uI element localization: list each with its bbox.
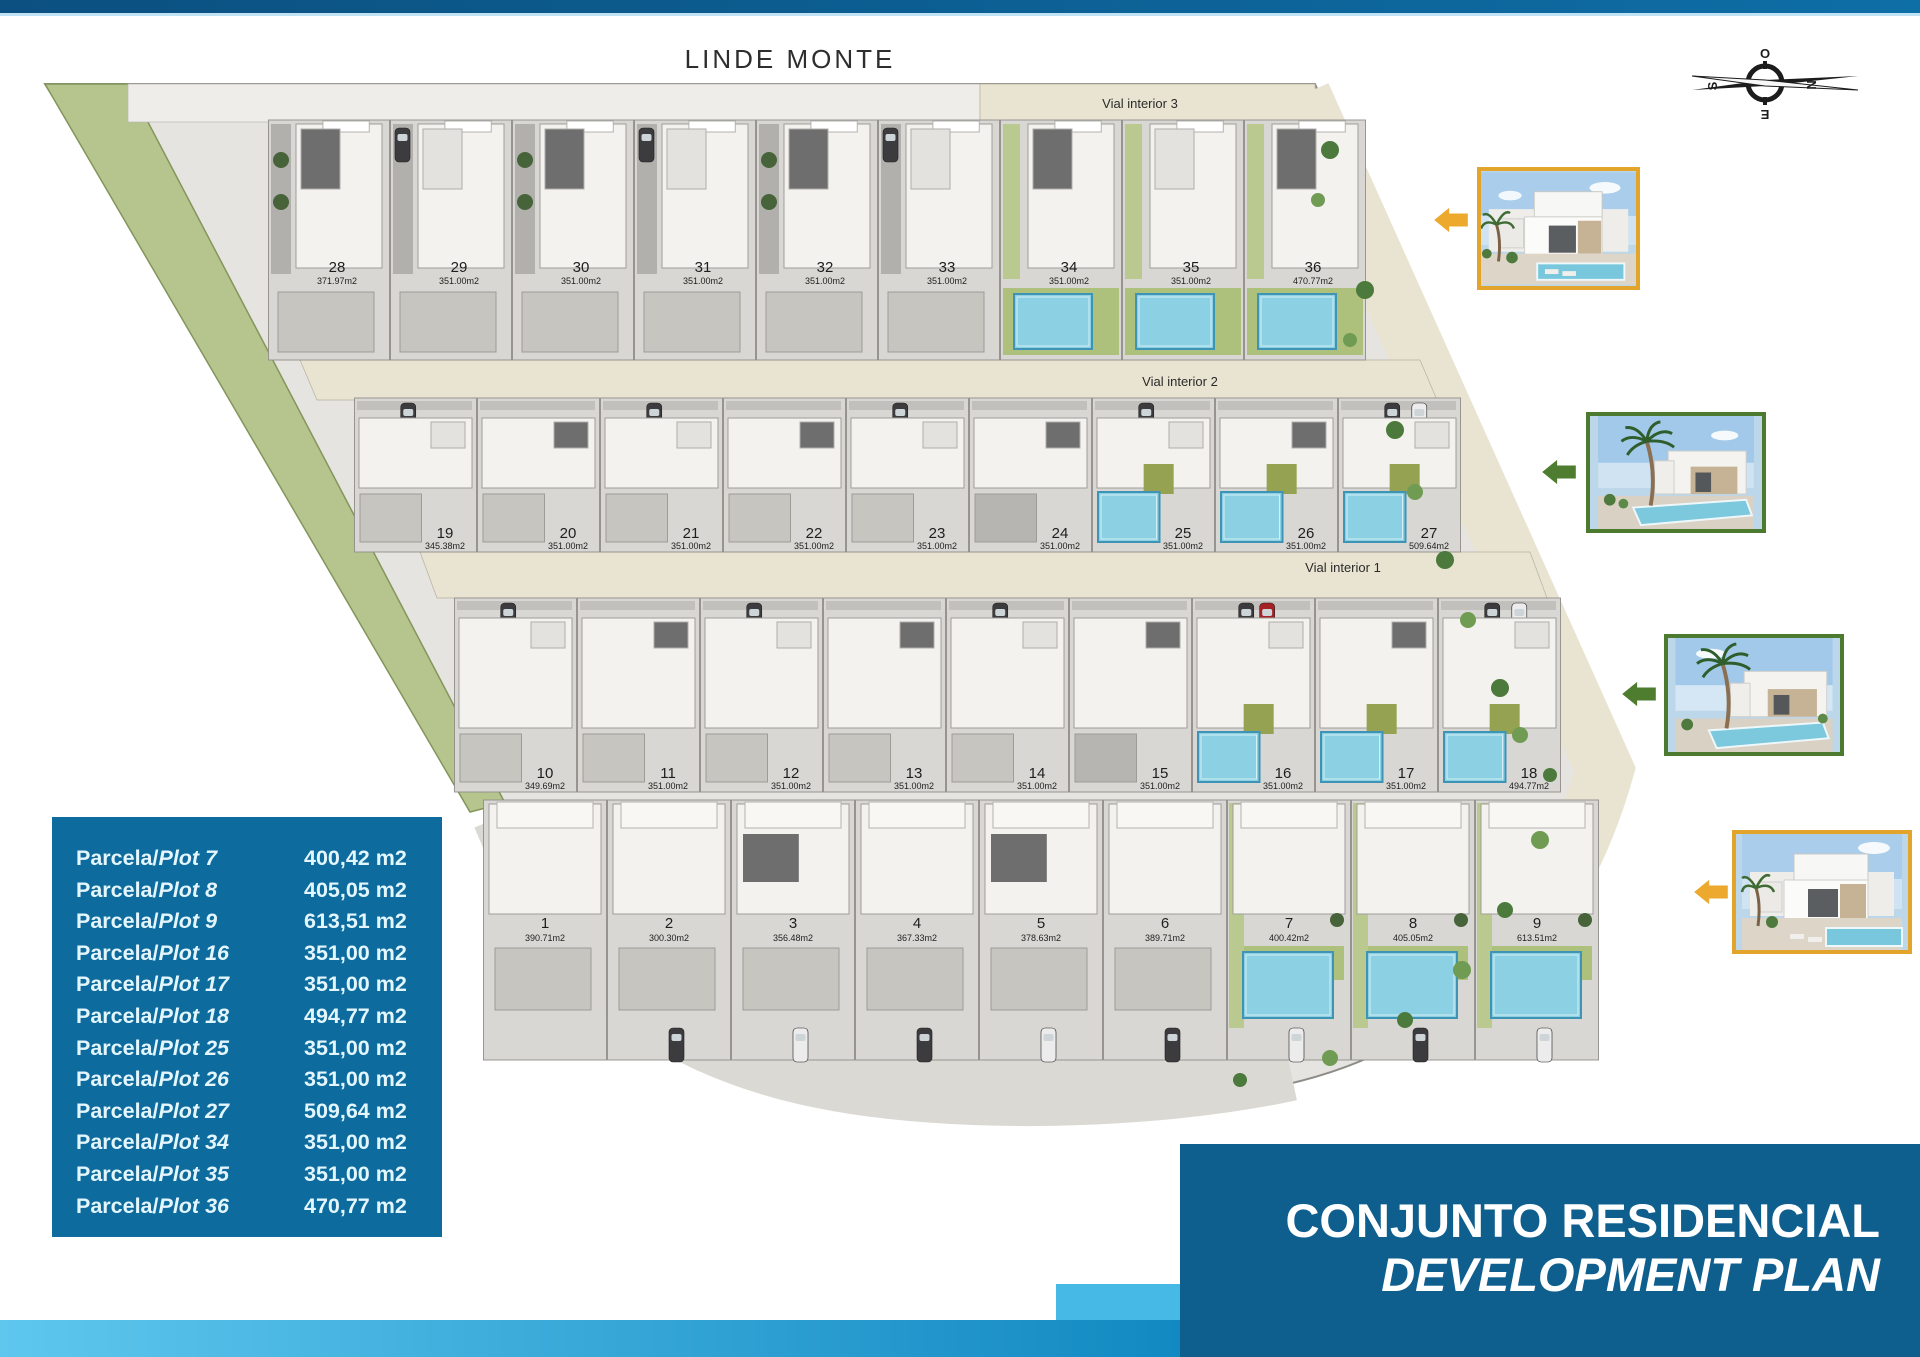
- villa-render: [1668, 638, 1840, 752]
- tree-icon: [1343, 333, 1357, 347]
- gravel-terrace: [952, 734, 1014, 782]
- gravel-terrace: [766, 292, 862, 352]
- plot-area: 351.00m2: [561, 276, 601, 286]
- gravel-terrace: [644, 292, 740, 352]
- plot-cell-16: 16351.00m2: [1193, 598, 1315, 792]
- roof-section: [1515, 622, 1549, 648]
- car-windshield: [672, 1034, 682, 1041]
- compass-letter-east: E: [1760, 107, 1769, 122]
- car-windshield: [1292, 1034, 1302, 1041]
- plot-area: 351.00m2: [805, 276, 845, 286]
- plot-area: 613.51m2: [1517, 933, 1557, 943]
- lawn-strip: [1247, 124, 1264, 279]
- roof-section: [545, 129, 584, 189]
- car-windshield: [398, 134, 408, 141]
- villa-render: [1481, 171, 1636, 286]
- lawn-strip: [1003, 124, 1020, 279]
- title-english: DEVELOPMENT PLAN: [1180, 1248, 1880, 1302]
- pool: [1198, 732, 1260, 782]
- roof-section: [1269, 622, 1303, 648]
- plot-number: 30: [573, 259, 590, 276]
- roof-section: [301, 129, 340, 189]
- plot-number: 18: [1521, 765, 1538, 782]
- legend-row: Parcela/Plot 36470,77 m2: [76, 1191, 428, 1223]
- gravel-terrace: [1115, 948, 1211, 1010]
- legend-plot-label: Parcela/Plot 18: [76, 1001, 304, 1033]
- pool: [1014, 294, 1092, 349]
- plot-area: 356.48m2: [773, 933, 813, 943]
- tree-icon: [1543, 768, 1557, 782]
- pool: [1321, 732, 1383, 782]
- legend-row: Parcela/Plot 27509,64 m2: [76, 1096, 428, 1128]
- plot-number: 1: [541, 915, 549, 932]
- plot-area: 405.05m2: [1393, 933, 1433, 943]
- plot-number: 31: [695, 259, 712, 276]
- plot-area: 351.00m2: [1040, 541, 1080, 551]
- car-icon: [1537, 1028, 1552, 1062]
- roof-section: [1277, 129, 1316, 189]
- plot-legend-panel: Parcela/Plot 7400,42 m2Parcela/Plot 8405…: [52, 817, 442, 1237]
- tree-icon: [273, 152, 289, 168]
- plot-number: 21: [683, 525, 700, 542]
- pool: [1098, 492, 1160, 542]
- roof-section: [789, 129, 828, 189]
- car-windshield: [403, 409, 413, 416]
- tree-icon: [761, 194, 777, 210]
- plot-area: 351.00m2: [794, 541, 834, 551]
- road-vial-3-label: Vial interior 3: [1102, 96, 1178, 111]
- bottom-accent-step: [1056, 1284, 1180, 1320]
- plot-number: 5: [1037, 915, 1045, 932]
- plot-number: 6: [1161, 915, 1169, 932]
- car-icon: [639, 128, 654, 162]
- car-windshield: [1168, 1034, 1178, 1041]
- pool: [1344, 492, 1406, 542]
- legend-plot-label: Parcela/Plot 17: [76, 969, 304, 1001]
- plot-area: 494.77m2: [1509, 781, 1549, 791]
- sidewalk-strip: [480, 401, 595, 410]
- pool: [1444, 732, 1506, 782]
- plot-number: 13: [906, 765, 923, 782]
- compass-rose: O N E S: [1692, 46, 1858, 122]
- gravel-terrace: [483, 494, 545, 542]
- plot-cell-17: 17351.00m2: [1316, 598, 1438, 792]
- plot-area: 351.00m2: [1017, 781, 1057, 791]
- street-label: LINDE MONTE: [640, 44, 940, 75]
- legend-plot-label: Parcela/Plot 7: [76, 843, 304, 875]
- tree-icon: [1321, 141, 1339, 159]
- road-vial-1-label: Vial interior 1: [1305, 560, 1381, 575]
- villa-render: [1736, 834, 1908, 950]
- top-bar-accent-line: [0, 13, 1920, 16]
- car-icon: [395, 128, 410, 162]
- roof-section: [991, 834, 1047, 882]
- gravel-terrace: [522, 292, 618, 352]
- tree-icon: [1397, 1012, 1413, 1028]
- car-windshield: [1416, 1034, 1426, 1041]
- plot-cell-29: 29351.00m2: [391, 120, 512, 360]
- plot-cell-10: 10349.69m2: [455, 598, 577, 792]
- car-windshield: [749, 609, 759, 616]
- plot-cell-35: 35351.00m2: [1123, 120, 1244, 360]
- gravel-terrace: [888, 292, 984, 352]
- roof-section: [1392, 622, 1426, 648]
- pool: [1491, 952, 1581, 1018]
- car-windshield: [895, 409, 905, 416]
- legend-plot-area: 613,51 m2: [304, 906, 407, 938]
- legend-row: Parcela/Plot 18494,77 m2: [76, 1001, 428, 1033]
- legend-plot-area: 405,05 m2: [304, 875, 407, 907]
- plot-cell-24: 24351.00m2: [970, 398, 1092, 552]
- roof-section: [667, 129, 706, 189]
- olive-terrace: [1367, 704, 1397, 734]
- pool: [1243, 952, 1333, 1018]
- gravel-terrace: [400, 292, 496, 352]
- villa-render: [1590, 416, 1762, 529]
- plot-area: 345.38m2: [425, 541, 465, 551]
- tree-icon: [273, 194, 289, 210]
- car-windshield: [1540, 1034, 1550, 1041]
- tree-icon: [1436, 551, 1454, 569]
- plot-area: 351.00m2: [1263, 781, 1303, 791]
- roof-section: [1292, 422, 1326, 448]
- canopy: [1241, 802, 1337, 828]
- plot-cell-22: 22351.00m2: [724, 398, 846, 552]
- plot-area: 351.00m2: [1049, 276, 1089, 286]
- plot-number: 16: [1275, 765, 1292, 782]
- plot-cell-19: 19345.38m2: [355, 398, 477, 552]
- plot-area: 351.00m2: [671, 541, 711, 551]
- plot-area: 349.69m2: [525, 781, 565, 791]
- plot-cell-7: 7400.42m2: [1228, 800, 1351, 1062]
- legend-plot-area: 494,77 m2: [304, 1001, 407, 1033]
- car-windshield: [1387, 409, 1397, 416]
- roof-section: [677, 422, 711, 448]
- plot-cell-21: 21351.00m2: [601, 398, 723, 552]
- legend-rows: Parcela/Plot 7400,42 m2Parcela/Plot 8405…: [76, 843, 428, 1222]
- gravel-terrace: [706, 734, 768, 782]
- compass-letter-west: O: [1760, 46, 1770, 61]
- sidewalk-strip: [826, 601, 941, 610]
- sidewalk-strip: [726, 401, 841, 410]
- plot-area: 351.00m2: [894, 781, 934, 791]
- legend-row: Parcela/Plot 9613,51 m2: [76, 906, 428, 938]
- tree-icon: [1311, 193, 1325, 207]
- road-vial-1: [420, 552, 1547, 598]
- bottom-accent-bar: [0, 1320, 1180, 1357]
- plot-number: 17: [1398, 765, 1415, 782]
- canopy: [1365, 802, 1461, 828]
- tree-icon: [1233, 1073, 1247, 1087]
- plot-cell-5: 5378.63m2: [980, 800, 1103, 1062]
- gravel-terrace: [278, 292, 374, 352]
- legend-plot-label: Parcela/Plot 26: [76, 1064, 304, 1096]
- plot-number: 3: [789, 915, 797, 932]
- pool: [1367, 952, 1457, 1018]
- olive-terrace: [1267, 464, 1297, 494]
- olive-terrace: [1244, 704, 1274, 734]
- roof-section: [800, 422, 834, 448]
- gravel-terrace: [583, 734, 645, 782]
- roof-section: [1415, 422, 1449, 448]
- gravel-terrace: [852, 494, 914, 542]
- legend-plot-area: 351,00 m2: [304, 938, 407, 970]
- sidewalk-strip: [1072, 601, 1187, 610]
- roof-section: [900, 622, 934, 648]
- plot-cell-25: 25351.00m2: [1093, 398, 1215, 552]
- plot-area: 351.00m2: [1286, 541, 1326, 551]
- legend-plot-area: 470,77 m2: [304, 1191, 407, 1223]
- plot-cell-1: 1390.71m2: [484, 800, 607, 1060]
- plot-cell-4: 4367.33m2: [856, 800, 979, 1062]
- car-windshield: [995, 609, 1005, 616]
- sidewalk-strip: [1318, 601, 1433, 610]
- tree-icon: [1512, 727, 1528, 743]
- plot-area: 351.00m2: [1140, 781, 1180, 791]
- canopy: [1117, 802, 1213, 828]
- car-windshield: [1241, 609, 1251, 616]
- legend-plot-area: 351,00 m2: [304, 1064, 407, 1096]
- roof-section: [431, 422, 465, 448]
- roof-section: [654, 622, 688, 648]
- car-windshield: [1414, 409, 1424, 416]
- plot-area: 509.64m2: [1409, 541, 1449, 551]
- plot-cell-27: 27509.64m2: [1339, 398, 1461, 552]
- legend-plot-label: Parcela/Plot 34: [76, 1127, 304, 1159]
- tree-icon: [517, 194, 533, 210]
- canopy: [621, 802, 717, 828]
- car-windshield: [1262, 609, 1272, 616]
- plot-cell-12: 12351.00m2: [701, 598, 823, 792]
- plot-area: 351.00m2: [548, 541, 588, 551]
- tree-icon: [1497, 902, 1513, 918]
- plot-number: 25: [1175, 525, 1192, 542]
- pool: [1136, 294, 1214, 349]
- canopy: [869, 802, 965, 828]
- legend-plot-label: Parcela/Plot 36: [76, 1191, 304, 1223]
- plot-cell-20: 20351.00m2: [478, 398, 600, 552]
- legend-plot-label: Parcela/Plot 9: [76, 906, 304, 938]
- car-windshield: [920, 1034, 930, 1041]
- roof-section: [1169, 422, 1203, 448]
- canopy: [497, 802, 593, 828]
- gravel-terrace: [975, 494, 1037, 542]
- arrow-icon: [1692, 878, 1730, 906]
- plot-area: 351.00m2: [1171, 276, 1211, 286]
- tree-icon: [1454, 913, 1468, 927]
- tree-icon: [517, 152, 533, 168]
- plot-area: 371.97m2: [317, 276, 357, 286]
- plot-cell-32: 32351.00m2: [757, 120, 878, 360]
- compass-letter-south: S: [1705, 81, 1720, 90]
- plot-cell-34: 34351.00m2: [1001, 120, 1122, 360]
- canopy: [993, 802, 1089, 828]
- roof-section: [1023, 622, 1057, 648]
- roof-section: [911, 129, 950, 189]
- plot-number: 7: [1285, 915, 1293, 932]
- plot-number: 4: [913, 915, 921, 932]
- tree-icon: [1491, 679, 1509, 697]
- legend-row: Parcela/Plot 17351,00 m2: [76, 969, 428, 1001]
- legend-plot-area: 351,00 m2: [304, 1127, 407, 1159]
- plot-cell-31: 31351.00m2: [635, 120, 756, 360]
- plot-area: 351.00m2: [1386, 781, 1426, 791]
- plot-number: 10: [537, 765, 554, 782]
- car-icon: [1041, 1028, 1056, 1062]
- top-walkway: [128, 84, 980, 122]
- plot-area: 378.63m2: [1021, 933, 1061, 943]
- roof-section: [1046, 422, 1080, 448]
- legend-plot-area: 351,00 m2: [304, 1033, 407, 1065]
- title-block: CONJUNTO RESIDENCIAL DEVELOPMENT PLAN: [1180, 1144, 1920, 1357]
- plot-area: 351.00m2: [917, 541, 957, 551]
- car-windshield: [649, 409, 659, 416]
- car-windshield: [1514, 609, 1524, 616]
- arrow-icon: [1432, 206, 1470, 234]
- canopy: [745, 802, 841, 828]
- legend-plot-area: 351,00 m2: [304, 969, 407, 1001]
- gravel-terrace: [619, 948, 715, 1010]
- roof-section: [923, 422, 957, 448]
- tree-icon: [1407, 484, 1423, 500]
- olive-terrace: [1144, 464, 1174, 494]
- gravel-terrace: [729, 494, 791, 542]
- legend-plot-area: 351,00 m2: [304, 1159, 407, 1191]
- plot-cell-26: 26351.00m2: [1216, 398, 1338, 552]
- roof-section: [554, 422, 588, 448]
- plot-area: 470.77m2: [1293, 276, 1333, 286]
- plot-number: 20: [560, 525, 577, 542]
- gravel-terrace: [360, 494, 422, 542]
- plot-area: 351.00m2: [1163, 541, 1203, 551]
- plot-number: 29: [451, 259, 468, 276]
- tree-icon: [1356, 281, 1374, 299]
- legend-row: Parcela/Plot 26351,00 m2: [76, 1064, 428, 1096]
- legend-plot-label: Parcela/Plot 8: [76, 875, 304, 907]
- car-windshield: [1141, 409, 1151, 416]
- title-spanish: CONJUNTO RESIDENCIAL: [1180, 1194, 1880, 1248]
- plot-number: 26: [1298, 525, 1315, 542]
- tree-icon: [1578, 913, 1592, 927]
- car-icon: [793, 1028, 808, 1062]
- roof-section: [1155, 129, 1194, 189]
- plot-cell-30: 30351.00m2: [513, 120, 634, 360]
- legend-row: Parcela/Plot 7400,42 m2: [76, 843, 428, 875]
- plot-cell-33: 33351.00m2: [879, 120, 1000, 360]
- car-icon: [1165, 1028, 1180, 1062]
- plot-area: 300.30m2: [649, 933, 689, 943]
- plot-area: 351.00m2: [771, 781, 811, 791]
- car-icon: [1413, 1028, 1428, 1062]
- plot-cell-28: 28371.97m2: [269, 120, 390, 360]
- plot-cell-14: 14351.00m2: [947, 598, 1069, 792]
- arrow-icon: [1620, 680, 1658, 708]
- tree-icon: [1460, 612, 1476, 628]
- tree-icon: [761, 152, 777, 168]
- gravel-terrace: [460, 734, 522, 782]
- legend-row: Parcela/Plot 8405,05 m2: [76, 875, 428, 907]
- plot-area: 351.00m2: [683, 276, 723, 286]
- plot-number: 14: [1029, 765, 1046, 782]
- legend-plot-label: Parcela/Plot 27: [76, 1096, 304, 1128]
- plot-area: 367.33m2: [897, 933, 937, 943]
- car-icon: [1289, 1028, 1304, 1062]
- plot-area: 351.00m2: [927, 276, 967, 286]
- plot-number: 9: [1533, 915, 1541, 932]
- plot-number: 8: [1409, 915, 1417, 932]
- plot-number: 36: [1305, 259, 1322, 276]
- plot-number: 32: [817, 259, 834, 276]
- car-windshield: [642, 134, 652, 141]
- plot-cell-13: 13351.00m2: [824, 598, 946, 792]
- villa-photo-3: [1664, 634, 1844, 756]
- plot-area: 389.71m2: [1145, 933, 1185, 943]
- plot-number: 27: [1421, 525, 1438, 542]
- tree-icon: [1453, 961, 1471, 979]
- plot-cell-11: 11351.00m2: [578, 598, 700, 792]
- arrow-icon: [1540, 458, 1578, 486]
- villa-photo-1: [1477, 167, 1640, 290]
- plot-number: 11: [660, 765, 676, 782]
- roof-section: [1146, 622, 1180, 648]
- plot-area: 351.00m2: [439, 276, 479, 286]
- roof-section: [531, 622, 565, 648]
- plot-cell-2: 2300.30m2: [608, 800, 731, 1062]
- plot-area: 400.42m2: [1269, 933, 1309, 943]
- legend-row: Parcela/Plot 34351,00 m2: [76, 1127, 428, 1159]
- sidewalk-strip: [972, 401, 1087, 410]
- pool: [1258, 294, 1336, 349]
- tree-icon: [1330, 913, 1344, 927]
- pool: [1221, 492, 1283, 542]
- tree-icon: [1531, 831, 1549, 849]
- legend-plot-area: 400,42 m2: [304, 843, 407, 875]
- car-icon: [917, 1028, 932, 1062]
- gravel-terrace: [743, 948, 839, 1010]
- plot-cell-15: 15351.00m2: [1070, 598, 1192, 792]
- sidewalk-strip: [580, 601, 695, 610]
- plot-cell-36: 36470.77m2: [1245, 120, 1366, 360]
- plot-cell-3: 3356.48m2: [732, 800, 855, 1062]
- plot-area: 390.71m2: [525, 933, 565, 943]
- plot-number: 15: [1152, 765, 1169, 782]
- gravel-terrace: [1075, 734, 1137, 782]
- roof-section: [777, 622, 811, 648]
- gravel-terrace: [867, 948, 963, 1010]
- lawn-strip: [1125, 124, 1142, 279]
- compass-letter-north: N: [1804, 80, 1819, 89]
- gravel-terrace: [829, 734, 891, 782]
- plot-cell-6: 6389.71m2: [1104, 800, 1227, 1062]
- legend-row: Parcela/Plot 35351,00 m2: [76, 1159, 428, 1191]
- plot-number: 24: [1052, 525, 1069, 542]
- plot-number: 23: [929, 525, 946, 542]
- plot-number: 12: [783, 765, 800, 782]
- plot-cell-23: 23351.00m2: [847, 398, 969, 552]
- roof-section: [423, 129, 462, 189]
- legend-plot-area: 509,64 m2: [304, 1096, 407, 1128]
- roof-section: [743, 834, 799, 882]
- plot-number: 19: [437, 525, 454, 542]
- gravel-terrace: [606, 494, 668, 542]
- plot-number: 22: [806, 525, 823, 542]
- tree-icon: [1322, 1050, 1338, 1066]
- roof-section: [1033, 129, 1072, 189]
- legend-plot-label: Parcela/Plot 16: [76, 938, 304, 970]
- car-windshield: [796, 1034, 806, 1041]
- legend-plot-label: Parcela/Plot 25: [76, 1033, 304, 1065]
- car-windshield: [503, 609, 513, 616]
